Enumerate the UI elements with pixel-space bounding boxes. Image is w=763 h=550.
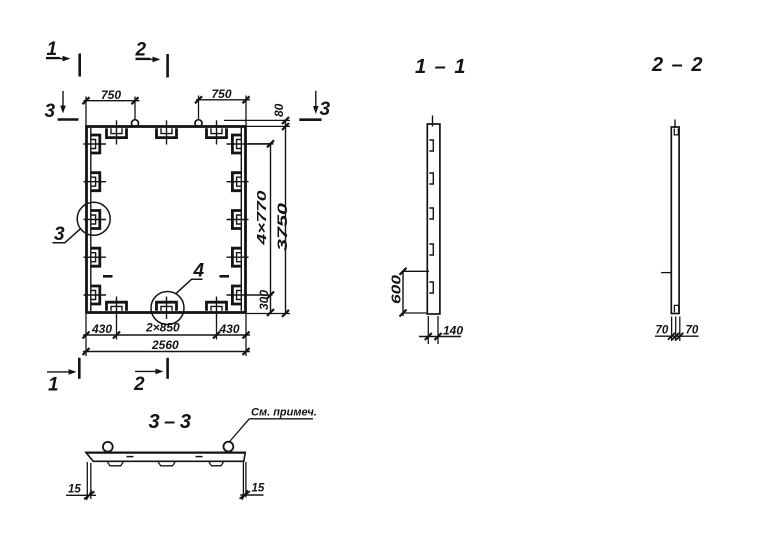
svg-text:750: 750 bbox=[101, 88, 121, 102]
svg-text:2 – 2: 2 – 2 bbox=[651, 54, 704, 76]
svg-text:3: 3 bbox=[54, 224, 65, 245]
svg-text:600: 600 bbox=[389, 274, 404, 304]
svg-text:1: 1 bbox=[47, 39, 58, 60]
svg-text:2×850: 2×850 bbox=[145, 321, 180, 335]
svg-text:3750: 3750 bbox=[275, 202, 290, 251]
svg-text:80: 80 bbox=[272, 103, 286, 117]
svg-text:4: 4 bbox=[193, 261, 205, 282]
svg-text:70: 70 bbox=[686, 325, 699, 337]
svg-text:3: 3 bbox=[320, 99, 331, 120]
svg-text:300: 300 bbox=[257, 290, 271, 310]
svg-text:15: 15 bbox=[252, 483, 265, 495]
svg-text:2: 2 bbox=[135, 40, 147, 61]
svg-text:70: 70 bbox=[656, 325, 669, 337]
svg-text:3 – 3: 3 – 3 bbox=[149, 411, 191, 433]
svg-text:15: 15 bbox=[68, 484, 81, 496]
svg-text:См. примеч.: См. примеч. bbox=[251, 407, 317, 419]
svg-text:4×770: 4×770 bbox=[255, 190, 269, 246]
svg-text:2560: 2560 bbox=[151, 338, 179, 352]
svg-text:2: 2 bbox=[133, 374, 145, 395]
svg-text:1: 1 bbox=[48, 375, 59, 396]
svg-text:430: 430 bbox=[91, 322, 112, 336]
svg-text:750: 750 bbox=[212, 87, 232, 101]
svg-text:3: 3 bbox=[45, 101, 56, 122]
svg-text:1 – 1: 1 – 1 bbox=[415, 56, 467, 78]
svg-text:140: 140 bbox=[443, 324, 463, 338]
svg-text:430: 430 bbox=[219, 322, 240, 336]
